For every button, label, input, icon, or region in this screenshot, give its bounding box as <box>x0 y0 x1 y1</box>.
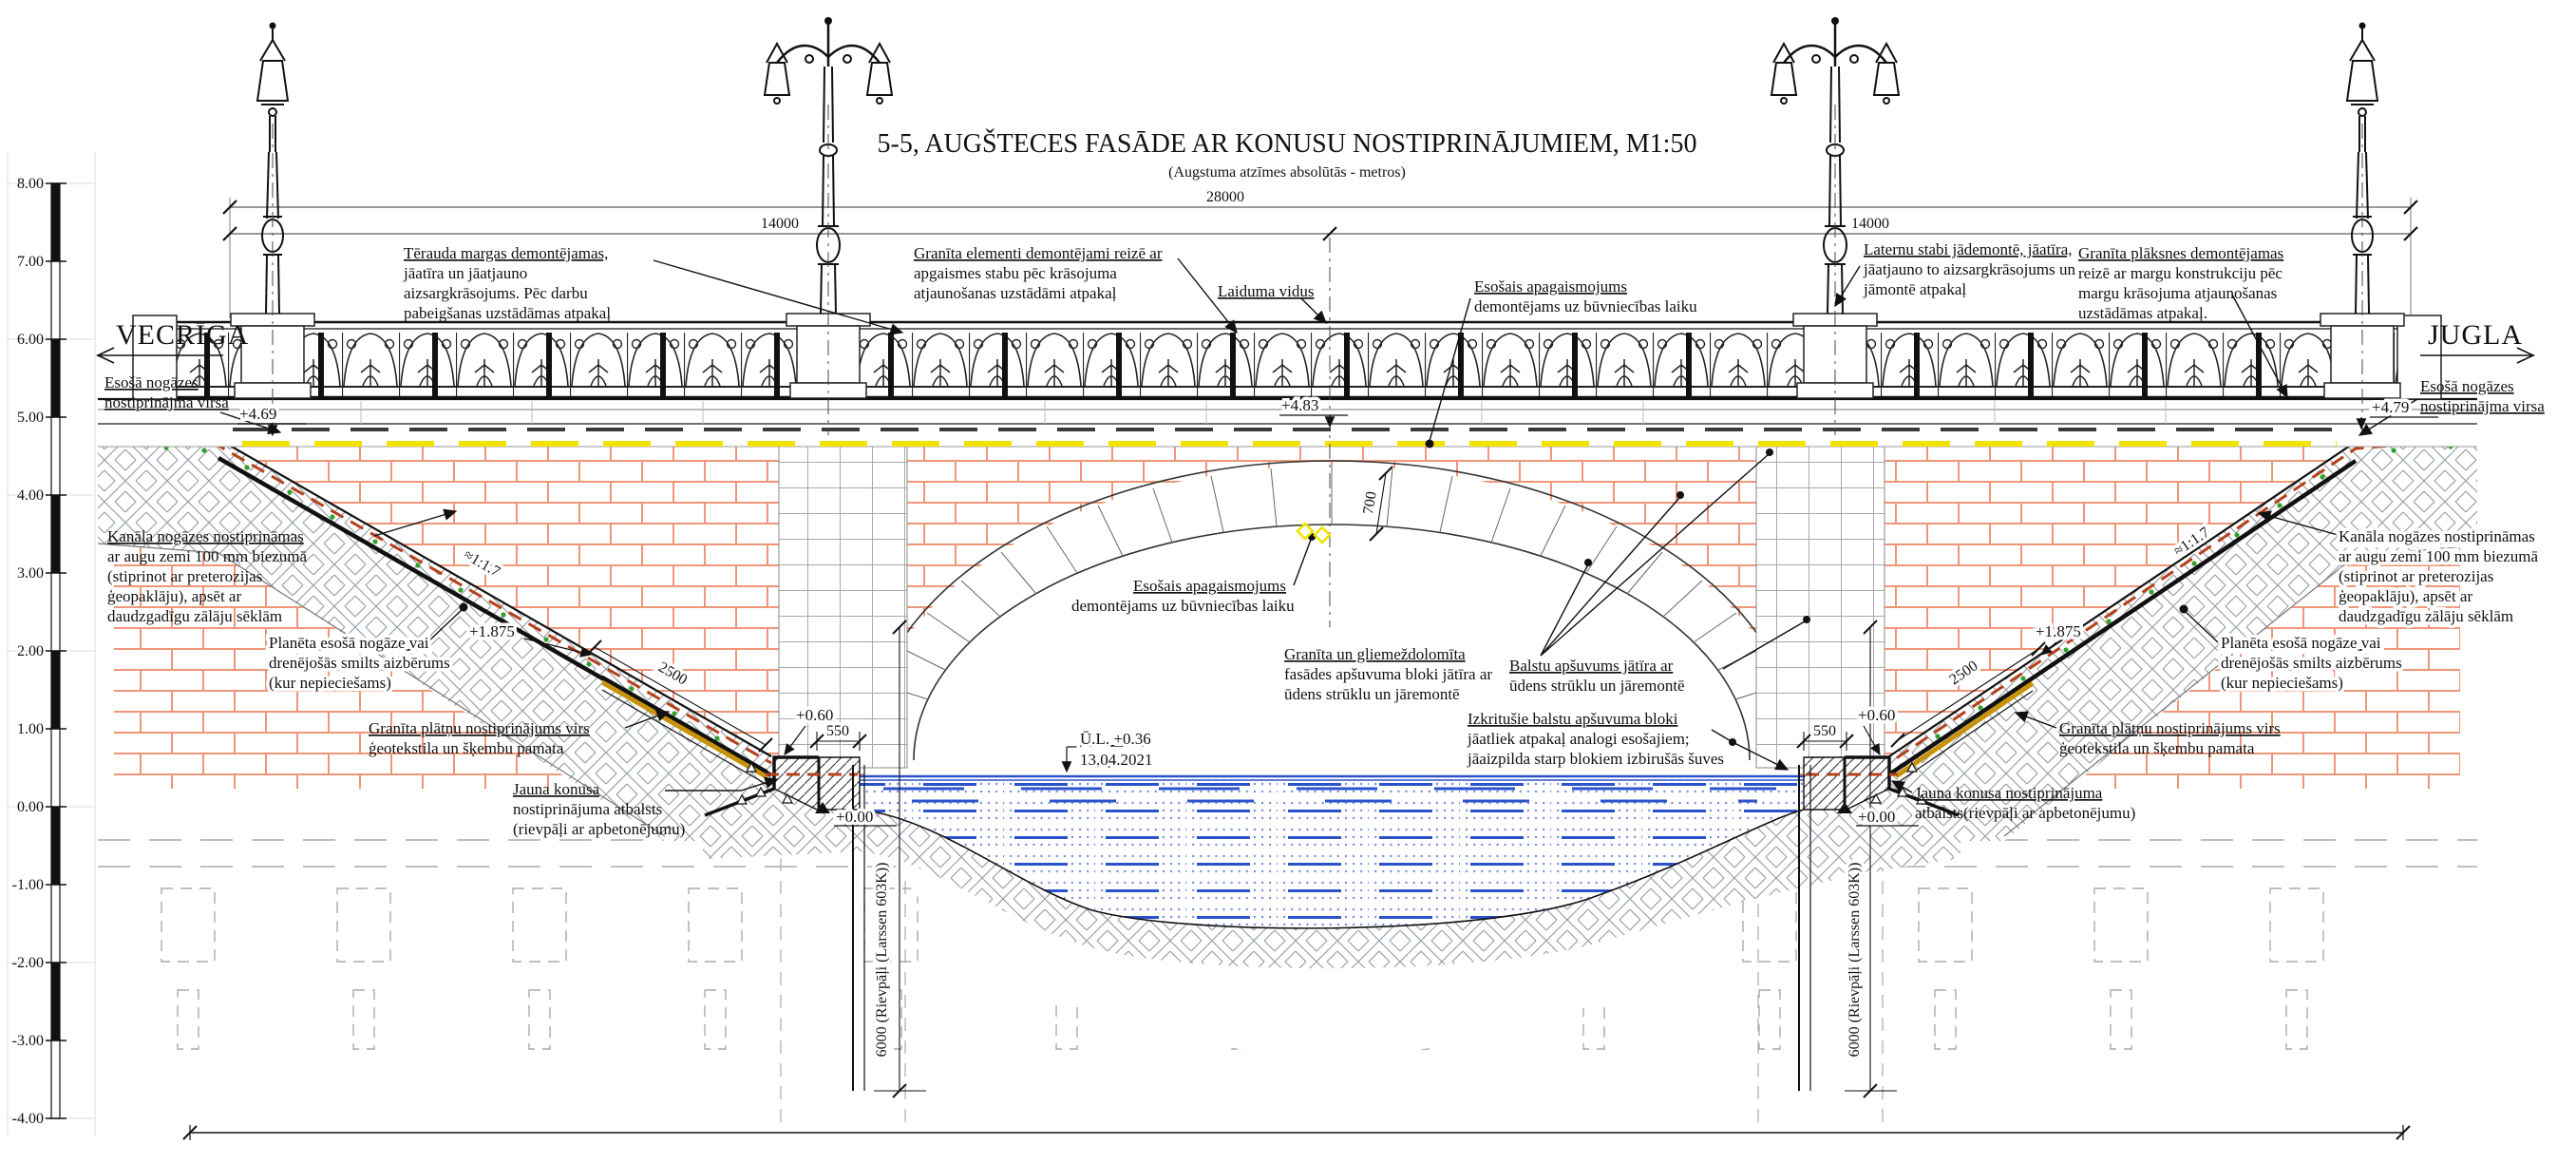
callout-laiduma-vidus: Laiduma vidus <box>1218 282 1315 300</box>
water-level-label: Ū.L. +0.36 <box>1080 730 1151 748</box>
scale-label: -4.00 <box>12 1111 44 1127</box>
callout-line: demontējams uz būvniecības laiku <box>1474 297 1697 315</box>
callout-line: ar augu zemi 100 mm biezumā <box>2339 547 2539 565</box>
callout-line: (rievpāļi ar apbetonējumu) <box>513 820 685 838</box>
elevation-zero-left: +0.00 <box>836 808 873 826</box>
bridge-elevation-drawing: 8.00 7.00 6.00 5.00 4.00 3.00 2.00 1.00 … <box>0 0 2576 1164</box>
page-title: 5-5, AUGŠTECES FASĀDE AR KONUSU NOSTIPRI… <box>878 129 1697 159</box>
callout-line: (stiprinot ar preterozijas <box>107 567 262 585</box>
callout-line: Laternu stabi jādemontē, jāatīra, <box>1864 240 2073 258</box>
dim-half-left: 14000 <box>761 216 799 232</box>
callout-line: ģeopaklāju), apsēt ar <box>107 587 241 605</box>
callout-line: margu krāsojuma atjaunošanas <box>2078 284 2277 302</box>
callout-line: ģeotekstila un šķembu pamata <box>2059 739 2255 757</box>
callout-line: (stiprinot ar preterozijas <box>2339 567 2493 585</box>
direction-right: JUGLA <box>2428 319 2523 351</box>
callout-line: jāmontē atpakaļ <box>1863 280 1966 298</box>
scale-label: 3.00 <box>17 565 44 582</box>
callout-laternu-stabi: Laternu stabi jādemontē, jāatīra, jāatja… <box>1863 240 2075 298</box>
dim-toe-right: 550 <box>1813 723 1836 739</box>
scale-label: 4.00 <box>17 487 44 504</box>
callout-line: Esošā nogāzes <box>2420 377 2514 395</box>
scale-label: 1.00 <box>17 721 44 737</box>
callout-line: Tērauda margas demontējamas, <box>404 244 608 262</box>
callout-line: Granīta elementi demontējami reizē ar <box>914 244 1163 262</box>
scale-label: -2.00 <box>12 955 44 971</box>
callout-line: atjaunošanas uzstādāmi atpakaļ <box>914 284 1117 302</box>
callout-line: Izkritušie balstu apšuvuma bloki <box>1468 710 1678 728</box>
dim-total: 28000 <box>1206 189 1244 205</box>
callout-line: daudzgadīgu zālāju sēklām <box>107 607 282 625</box>
callout-line: Kanāla nogāzes nostiprināmas <box>2339 527 2535 545</box>
elevation-deck-right: +4.79 <box>2372 398 2409 416</box>
callout-line: Granīta plātņu nostiprinājums virs <box>369 719 590 737</box>
callout-line: pabeigšanas uzstādāmas atpakaļ <box>404 304 611 322</box>
scale-label: 2.00 <box>17 643 44 659</box>
title-block: 5-5, AUGŠTECES FASĀDE AR KONUSU NOSTIPRI… <box>878 129 1697 181</box>
callout-line: daudzgadīgu zālāju sēklām <box>2339 607 2513 625</box>
scale-label: -3.00 <box>12 1033 44 1049</box>
callout-line: ūdens strūklu un jāremontē <box>1509 677 1685 695</box>
dim-half-right: 14000 <box>1851 216 1889 232</box>
elevation-slab-left: +1.875 <box>469 622 515 640</box>
callout-granita-plaksnes: Granīta plāksnes demontējamas reizē ar m… <box>2078 244 2283 322</box>
base-line <box>183 1125 2410 1140</box>
callout-line: drenējošās smilts aizbērums <box>2221 654 2402 672</box>
callout-line: Planēta esošā nogāze vai <box>269 634 429 652</box>
callout-line: uzstādāmas atpakaļ. <box>2078 304 2207 322</box>
elevation-zero-right: +0.00 <box>1858 808 1895 826</box>
page-subtitle: (Augstuma atzīmes absolūtās - metros) <box>1168 164 1406 181</box>
callout-line: demontējams uz būvniecības laiku <box>1071 597 1295 615</box>
elevation-deck-mid: +4.83 <box>1281 396 1318 414</box>
scale-label: -1.00 <box>12 877 44 893</box>
dim-toe-left: 550 <box>826 723 849 739</box>
callout-line: apgaismes stabu pēc krāsojuma <box>914 264 1117 282</box>
callout-line: reizē ar margu konstrukciju pēc <box>2078 264 2282 282</box>
elevation-scale-bar: 8.00 7.00 6.00 5.00 4.00 3.00 2.00 1.00 … <box>12 176 66 1127</box>
callout-esosais-apgaismojums-top: Esošais apagaismojums demontējams uz būv… <box>1474 277 1697 315</box>
callout-line: Esošais apagaismojums <box>1474 277 1627 296</box>
callout-line: ar augu zemi 100 mm biezumā <box>107 547 308 565</box>
callout-line: jāatliek atpakaļ analogi esošajiem; <box>1467 730 1690 748</box>
elevation-toe-right: +0.60 <box>1858 706 1895 724</box>
callout-line: ģeopaklāju), apsēt ar <box>2339 587 2472 605</box>
dim-sheet-pile-left: 6000 (Rievpāļi (Larssen 603K)) <box>874 863 890 1058</box>
callout-line: Kanāla nogāzes nostiprināmas <box>107 527 304 545</box>
callout-line: fasādes apšuvuma bloki jātīra ar <box>1284 665 1492 683</box>
callout-line: jāatjauno to aizsargkrāsojums un <box>1863 260 2075 278</box>
callout-line: Balstu apšuvums jātīra ar <box>1509 657 1674 675</box>
railing <box>133 315 2441 399</box>
callout-line: nostiprinājuma atbalsts <box>513 800 662 818</box>
callout-line: Jauna konusa nostiprinājuma <box>1915 784 2103 802</box>
callout-line: ūdens strūklu un jāremontē <box>1284 685 1460 703</box>
callout-line: Planēta esošā nogāze vai <box>2221 634 2381 652</box>
elevation-deck-left: +4.69 <box>239 405 276 423</box>
scale-label: 5.00 <box>17 410 44 426</box>
callout-line: (kur nepieciešams) <box>2221 674 2343 692</box>
elevation-toe-left: +0.60 <box>796 706 833 724</box>
callout-granita-elementi: Granīta elementi demontējami reizē ar ap… <box>914 244 1163 302</box>
callout-line: Esošā nogāzes <box>104 373 199 391</box>
callout-kanala-right: Kanāla nogāzes nostiprināmas ar augu zem… <box>2339 527 2539 625</box>
callout-line: jāaizpilda starp blokiem izbirušās šuves <box>1467 750 1724 768</box>
scale-label: 7.00 <box>17 254 44 270</box>
elevation-slab-right: +1.875 <box>2036 622 2081 640</box>
scale-label: 0.00 <box>17 799 44 815</box>
lamp-post-single-right <box>2347 24 2377 315</box>
callout-line: Granīta un gliemeždolomīta <box>1284 645 1466 663</box>
callout-line: atbalsts(rievpāļi ar apbetonējumu) <box>1915 804 2135 822</box>
callout-line: nostiprinājma virsa <box>104 393 229 411</box>
direction-left: VECRĪGA <box>116 319 249 351</box>
callout-line: ģeotekstila un šķembu pamata <box>369 739 564 757</box>
callout-terauda-margas: Tērauda margas demontējamas, jāatīra un … <box>403 244 611 322</box>
drawing-sheet: 8.00 7.00 6.00 5.00 4.00 3.00 2.00 1.00 … <box>0 0 2576 1164</box>
water-level-date: 13.04.2021 <box>1080 751 1153 769</box>
callout-line: Granīta plāksnes demontējamas <box>2078 244 2283 262</box>
lamp-post-single-left <box>257 24 288 315</box>
scale-label: 8.00 <box>17 176 44 192</box>
callout-line: aizsargkrāsojums. Pēc darbu <box>404 284 588 302</box>
scale-label: 6.00 <box>17 332 44 348</box>
callout-line: Granīta plātņu nostiprinājums virs <box>2059 719 2281 737</box>
callout-line: Jauna konusa <box>513 780 600 798</box>
callout-line: Laiduma vidus <box>1218 282 1315 300</box>
callout-line: Esošais apagaismojums <box>1133 577 1286 595</box>
dim-sheet-pile-right: 6000 (Rievpāļi (Larssen 603K)) <box>1847 863 1863 1058</box>
callout-line: jāatīra un jāatjauno <box>403 264 527 282</box>
callout-line: (kur nepieciešams) <box>269 674 391 692</box>
callout-line: drenējošās smilts aizbērums <box>269 654 450 672</box>
callout-line: nostiprinājma virsa <box>2420 397 2545 415</box>
